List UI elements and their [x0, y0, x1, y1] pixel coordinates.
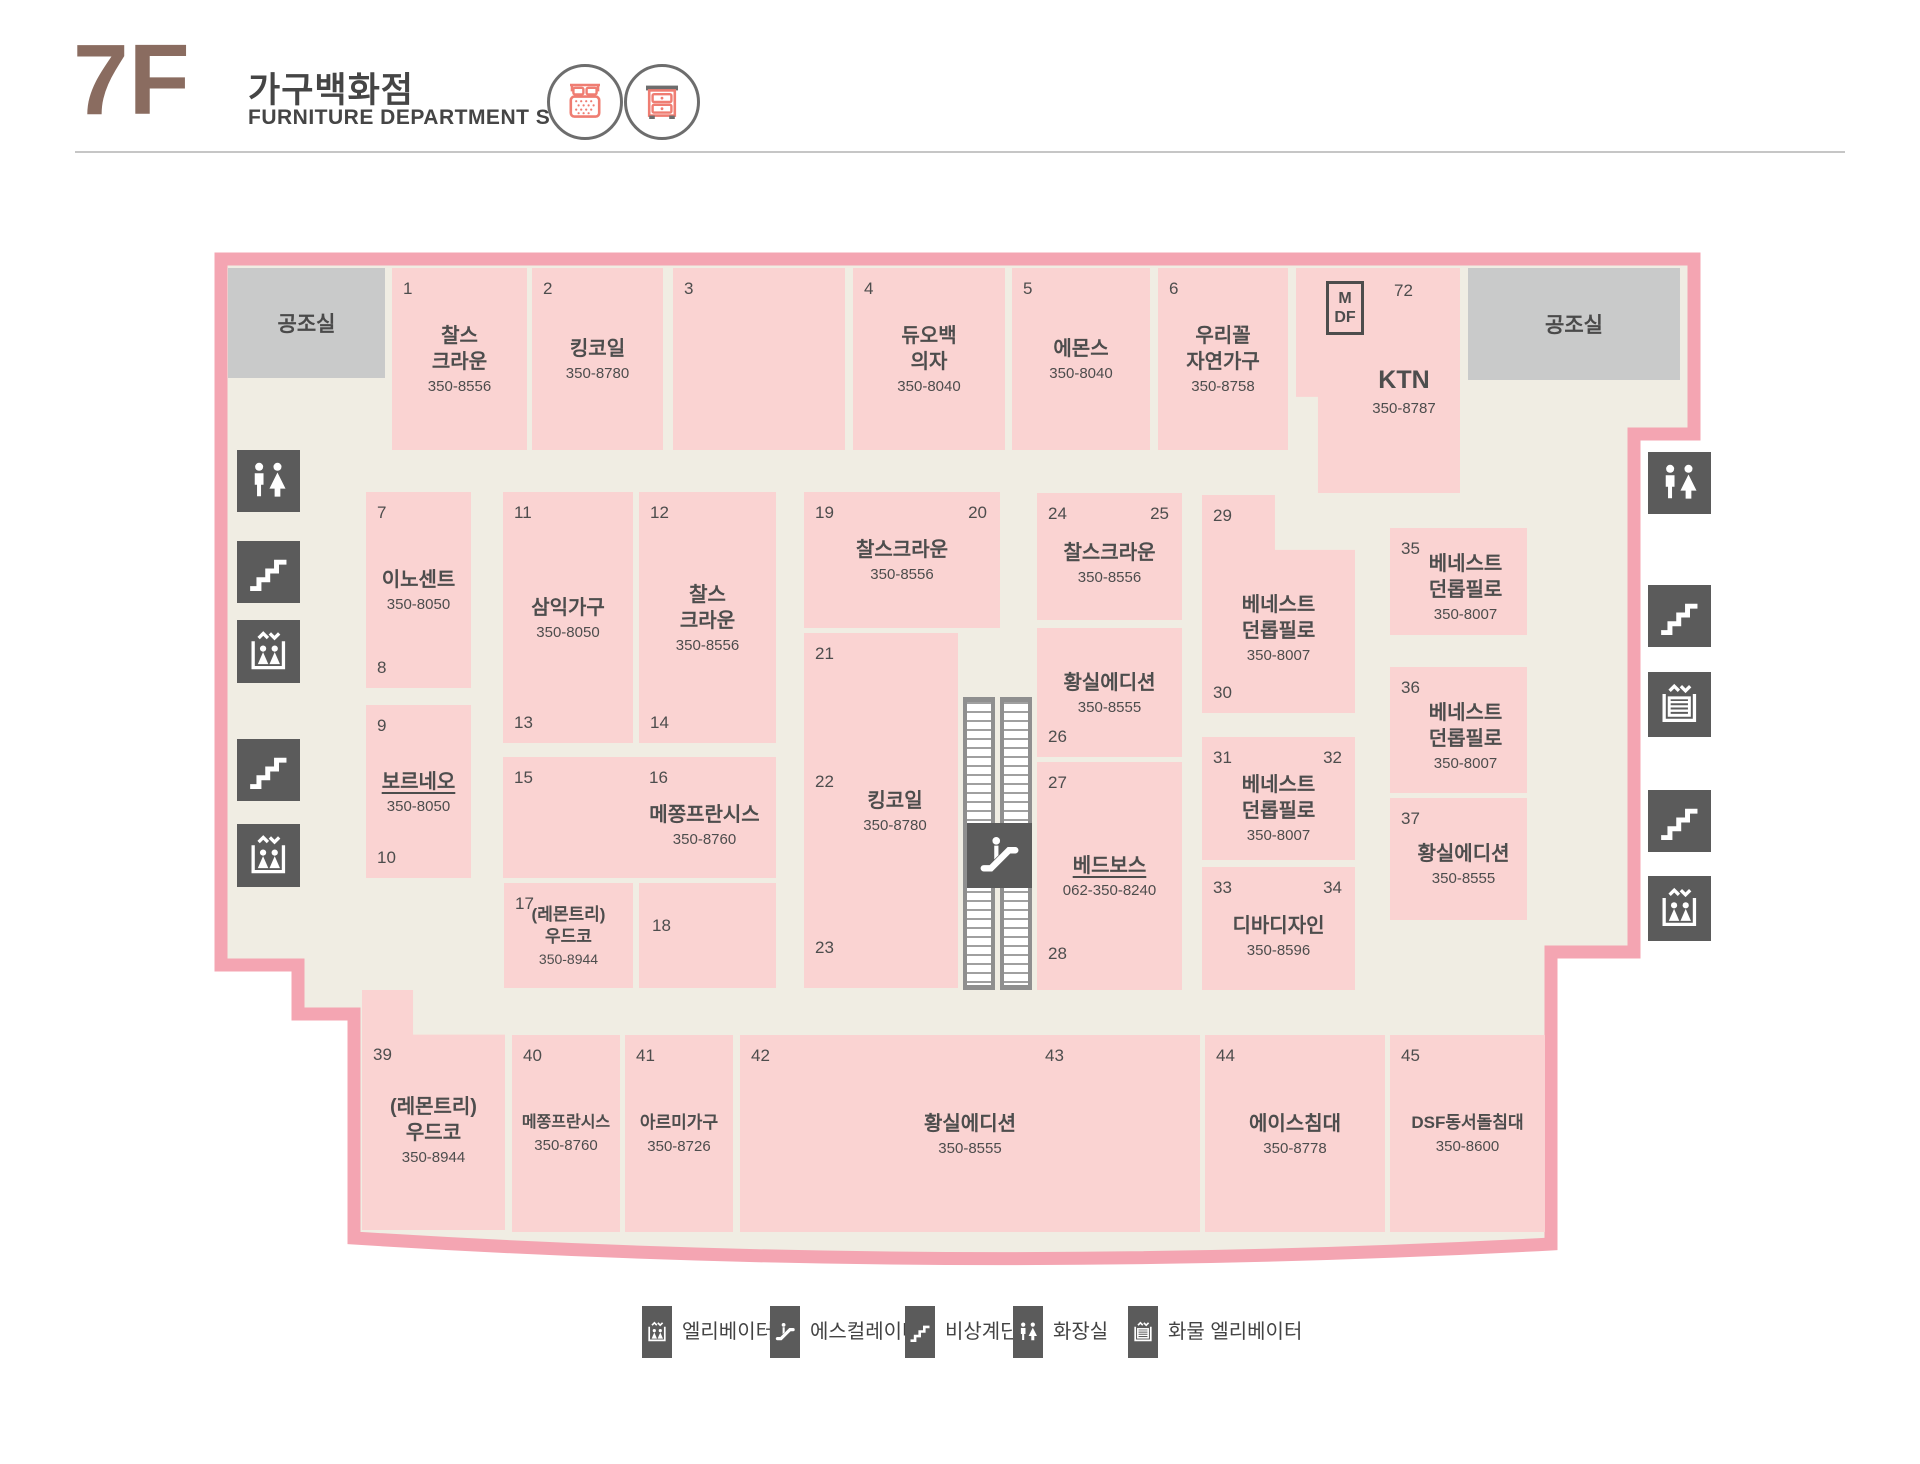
unit-number: 17: [515, 895, 534, 912]
unit-number: 25: [1150, 505, 1169, 522]
unit-number: 27: [1048, 774, 1067, 791]
unit-number: 21: [815, 645, 834, 662]
store-name: 찰스 크라운: [428, 323, 491, 375]
store-phone: 350-8007: [1242, 647, 1316, 664]
store-name: 베네스트 던롭필로: [1429, 551, 1503, 603]
unit-number: 1: [403, 280, 412, 297]
map-unit-18: 18: [639, 883, 776, 988]
map-unit-35: 35 베네스트 던롭필로 350-8007: [1390, 528, 1527, 635]
escalator-icon: [967, 823, 1032, 888]
map-unit-15-16: 15 16 메쫑프란시스 350-8760: [503, 757, 776, 878]
escalator-icon: [770, 1306, 800, 1358]
map-unit-7-8: 7 8 이노센트 350-8050: [366, 492, 471, 688]
map-unit-44: 44 에이스침대 350-8778: [1205, 1035, 1385, 1232]
store-name: 듀오백 의자: [897, 323, 960, 375]
store-phone: 350-8040: [897, 378, 960, 395]
store-phone: 350-8555: [1064, 699, 1156, 716]
store-phone: 350-8778: [1249, 1140, 1341, 1157]
unit-number: 44: [1216, 1047, 1235, 1064]
store-name: 황실에디션: [924, 1111, 1016, 1137]
store-name: 보르네오: [382, 769, 456, 795]
store-phone: 350-8758: [1186, 378, 1260, 395]
elevator-icon: [642, 1306, 672, 1358]
store-phone: 350-8600: [1411, 1138, 1523, 1155]
unit-number: 16: [649, 769, 668, 786]
store-phone: 350-8007: [1429, 755, 1503, 772]
store-phone: 350-8050: [382, 596, 456, 613]
store-name: KTN: [1348, 364, 1460, 397]
store-phone: 350-8726: [640, 1138, 718, 1155]
store-name: 이노센트: [382, 567, 456, 593]
store-name: 찰스 크라운: [676, 582, 739, 634]
legend-label: 에스컬레이터: [810, 1306, 920, 1358]
store-name: 에이스침대: [1249, 1111, 1341, 1137]
unit-number: 9: [377, 717, 386, 734]
store-phone: 350-8007: [1242, 827, 1316, 844]
unit-number: 29: [1213, 507, 1232, 524]
store-phone: 062-350-8240: [1063, 882, 1156, 899]
store-name: 베네스트 던롭필로: [1242, 772, 1316, 824]
store-phone: 350-8555: [1418, 870, 1510, 887]
map-unit-72-ktn: 72 MDF KTN 350-8787: [1296, 268, 1460, 493]
unit-number: 10: [377, 849, 396, 866]
store-phone: 350-8760: [649, 831, 759, 848]
store-phone: 350-8760: [522, 1137, 610, 1154]
store-phone: 350-8050: [531, 624, 605, 641]
store-phone: 350-8555: [924, 1140, 1016, 1157]
map-unit-37: 37 황실에디션 350-8555: [1390, 798, 1527, 920]
unit-number: 18: [652, 917, 671, 934]
map-unit-4: 4 듀오백 의자 350-8040: [853, 268, 1005, 450]
utility-room-label: 공조실: [1545, 309, 1603, 339]
map-unit-42-43: 42 43 황실에디션 350-8555: [740, 1035, 1200, 1232]
store-name: 찰스크라운: [856, 537, 948, 563]
elevator-icon: [237, 620, 300, 683]
emergency-stairs-icon: [237, 541, 300, 603]
store-name: 메쫑프란시스: [649, 802, 759, 828]
map-unit-33-34: 33 34 디바디자인 350-8596: [1202, 867, 1355, 990]
unit-number: 2: [543, 280, 552, 297]
map-unit-45: 45 DSF동서돌침대 350-8600: [1390, 1035, 1545, 1232]
unit-number: 23: [815, 939, 834, 956]
store-name: (레몬트리) 우드코: [532, 904, 606, 948]
unit-number: 42: [751, 1047, 770, 1064]
unit-number: 22: [815, 773, 834, 790]
unit-number: 26: [1048, 728, 1067, 745]
store-name: 베드보스: [1063, 853, 1156, 879]
freight-elevator-icon: [1128, 1306, 1158, 1358]
store-phone: 350-8556: [428, 378, 491, 395]
map-unit-36: 36 베네스트 던롭필로 350-8007: [1390, 667, 1527, 793]
unit-number: 20: [968, 504, 987, 521]
store-phone: 350-8944: [532, 951, 606, 967]
emergency-stairs-icon: [237, 739, 300, 801]
store-name: 메쫑프란시스: [522, 1113, 610, 1134]
map-unit-31-32: 31 32 베네스트 던롭필로 350-8007: [1202, 737, 1355, 860]
unit-number: 31: [1213, 749, 1232, 766]
unit-number: 39: [373, 1046, 392, 1063]
map-unit-41: 41 아르미가구 350-8726: [625, 1035, 733, 1232]
map-unit-27-28: 27 28 베드보스 062-350-8240: [1037, 762, 1182, 990]
unit-number: 13: [514, 714, 533, 731]
store-name: 디바디자인: [1233, 913, 1325, 939]
store-phone: 350-8040: [1049, 365, 1112, 382]
legend-label: 비상계단: [945, 1306, 1019, 1358]
map-unit-6: 6 우리꼴 자연가구 350-8758: [1158, 268, 1288, 450]
unit-number: 30: [1213, 684, 1232, 701]
map-unit-24-25: 24 25 찰스크라운 350-8556: [1037, 493, 1182, 620]
unit-number: 72: [1394, 282, 1413, 299]
store-name: 황실에디션: [1418, 841, 1510, 867]
emergency-stairs-icon: [905, 1306, 935, 1358]
unit-number: 37: [1401, 810, 1420, 827]
map-unit-12-14: 12 14 찰스 크라운 350-8556: [639, 492, 776, 743]
elevator-icon: [237, 824, 300, 887]
elevator-icon: [1648, 876, 1711, 941]
utility-room-left: 공조실: [228, 268, 385, 378]
floor-map-page: 7F 가구백화점 FURNITURE DEPARTMENT STORE 공조실 …: [0, 0, 1920, 1464]
map-unit-11-13: 11 13 삼익가구 350-8050: [503, 492, 633, 743]
map-unit-26: 26 황실에디션 350-8555: [1037, 628, 1182, 757]
store-name: 킹코일: [566, 336, 629, 362]
map-unit-5: 5 에몬스 350-8040: [1012, 268, 1150, 450]
unit-number: 14: [650, 714, 669, 731]
unit-number: 43: [1045, 1047, 1064, 1064]
legend-label: 엘리베이터: [682, 1306, 774, 1358]
store-name: 에몬스: [1049, 336, 1112, 362]
map-unit-40: 40 메쫑프란시스 350-8760: [512, 1035, 620, 1232]
store-name: 황실에디션: [1064, 670, 1156, 696]
store-name: 우리꼴 자연가구: [1186, 323, 1260, 375]
unit-number: 28: [1048, 945, 1067, 962]
store-phone: 350-8944: [390, 1149, 477, 1166]
unit-number: 7: [377, 504, 386, 521]
store-phone: 350-8780: [566, 365, 629, 382]
map-unit-9-10: 9 10 보르네오 350-8050: [366, 705, 471, 878]
toilet-icon: [1648, 452, 1711, 514]
map-unit-3: 3: [673, 268, 845, 450]
unit-number: 15: [514, 769, 533, 786]
utility-room-label: 공조실: [278, 308, 336, 338]
map-unit-19-20: 19 20 찰스크라운 350-8556: [804, 492, 1000, 628]
unit-number: 34: [1323, 879, 1342, 896]
store-name: 킹코일: [863, 788, 926, 814]
map-unit-17: 17 (레몬트리) 우드코 350-8944: [504, 883, 633, 988]
map-unit-1: 1 찰스 크라운 350-8556: [392, 268, 527, 450]
store-name: (레몬트리) 우드코: [390, 1094, 477, 1146]
store-name: DSF동서돌침대: [1411, 1112, 1523, 1134]
freight-elevator-icon: [1648, 672, 1711, 737]
store-name: 아르미가구: [640, 1112, 718, 1134]
unit-number: 4: [864, 280, 873, 297]
unit-number: 8: [377, 659, 386, 676]
mdf-room-label: MDF: [1326, 281, 1364, 335]
store-name: 베네스트 던롭필로: [1242, 592, 1316, 644]
unit-number: 3: [684, 280, 693, 297]
unit-number: 40: [523, 1047, 542, 1064]
map-unit-21-22-23: 21 22 23 킹코일 350-8780: [804, 633, 958, 988]
unit-number: 33: [1213, 879, 1232, 896]
store-phone: 350-8556: [676, 637, 739, 654]
store-name: 찰스크라운: [1064, 540, 1156, 566]
store-name: 베네스트 던롭필로: [1429, 700, 1503, 752]
unit-number: 45: [1401, 1047, 1420, 1064]
emergency-stairs-icon: [1648, 790, 1711, 852]
unit-number: 41: [636, 1047, 655, 1064]
floor-outline: [0, 0, 1920, 1464]
store-phone: 350-8050: [382, 798, 456, 815]
legend-label: 화물 엘리베이터: [1168, 1306, 1302, 1358]
unit-number: 12: [650, 504, 669, 521]
unit-number: 36: [1401, 679, 1420, 696]
unit-number: 32: [1323, 749, 1342, 766]
unit-number: 11: [514, 504, 532, 521]
utility-room-right: 공조실: [1468, 268, 1680, 380]
store-phone: 350-8780: [863, 817, 926, 834]
unit-number: 6: [1169, 280, 1178, 297]
map-unit-2: 2 킹코일 350-8780: [532, 268, 663, 450]
store-phone: 350-8556: [1064, 569, 1156, 586]
store-phone: 350-8596: [1233, 942, 1325, 959]
emergency-stairs-icon: [1648, 585, 1711, 647]
store-phone: 350-8556: [856, 566, 948, 583]
unit-number: 24: [1048, 505, 1067, 522]
toilet-icon: [1013, 1306, 1043, 1358]
unit-number: 19: [815, 504, 834, 521]
unit-number: 5: [1023, 280, 1032, 297]
toilet-icon: [237, 450, 300, 512]
legend-label: 화장실: [1053, 1306, 1108, 1358]
store-phone: 350-8787: [1348, 400, 1460, 417]
store-phone: 350-8007: [1429, 606, 1503, 623]
store-name: 삼익가구: [531, 595, 605, 621]
unit-number: 35: [1401, 540, 1420, 557]
